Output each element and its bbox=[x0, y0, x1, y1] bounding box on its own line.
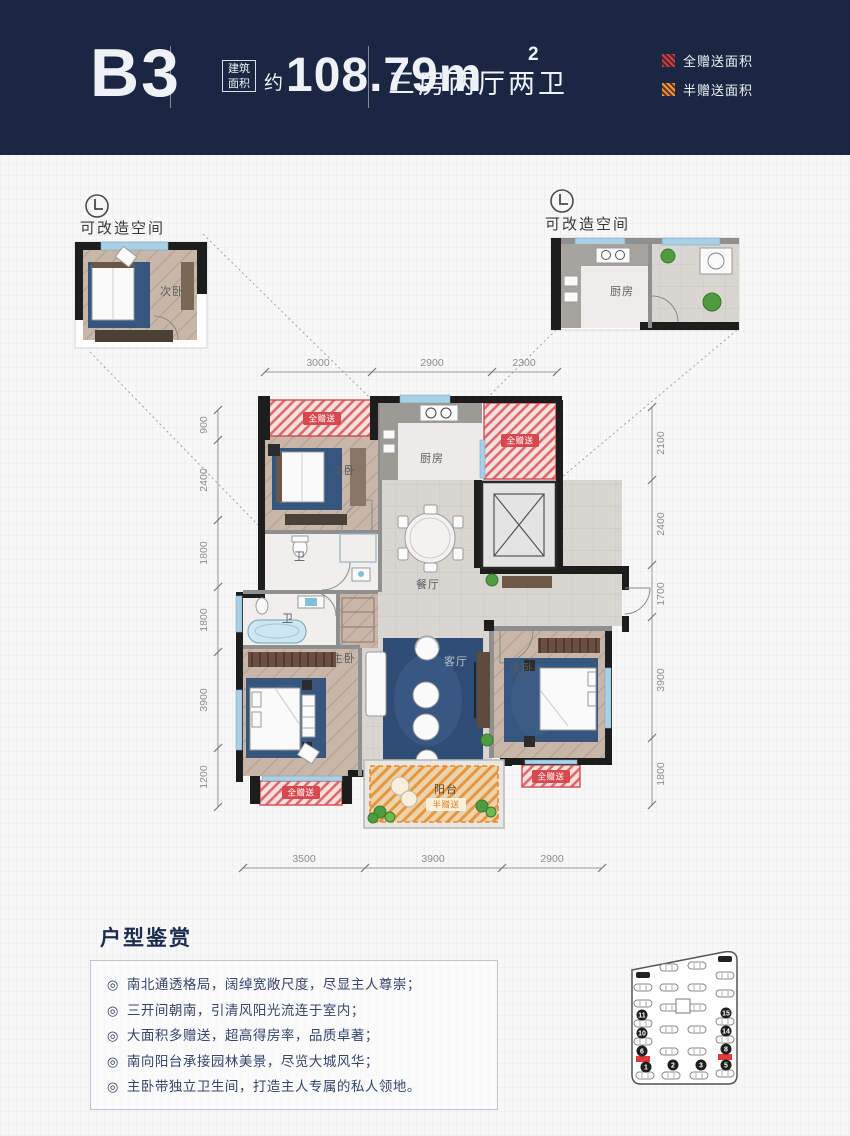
svg-text:3900: 3900 bbox=[655, 668, 667, 692]
feature-text: 大面积多赠送，超高得房率，品质卓著； bbox=[127, 1024, 379, 1044]
site-plan-map: 1 2 3 5 6 8 10 11 14 15 bbox=[616, 944, 752, 1094]
gift-area-master-bay: 全赠送 bbox=[260, 781, 342, 805]
header-divider-2 bbox=[368, 46, 369, 108]
balcony-half-gift-tag: 半赠送 bbox=[432, 800, 459, 810]
svg-text:1200: 1200 bbox=[198, 765, 210, 789]
callout-right-title: 可改造空间 bbox=[545, 216, 630, 233]
svg-text:全赠送: 全赠送 bbox=[287, 788, 314, 798]
features-box: ◎ 南北通透格局，阔绰宽敞尺度，尽显主人尊崇； ◎ 三开间朝南，引清风阳光流连于… bbox=[90, 960, 498, 1110]
highlighted-unit bbox=[636, 1056, 650, 1062]
area-approx: 约 bbox=[264, 68, 283, 95]
svg-text:1800: 1800 bbox=[198, 608, 210, 632]
half-gift-label: 半赠送面积 bbox=[683, 80, 753, 99]
svg-text:11: 11 bbox=[638, 1013, 646, 1020]
gift-legend: 全赠送面积 半赠送面积 bbox=[662, 50, 753, 108]
unit-code: B3 bbox=[90, 34, 181, 112]
highlighted-unit bbox=[718, 1054, 732, 1060]
svg-text:全赠送: 全赠送 bbox=[537, 772, 564, 782]
main-floor-plan: 全赠送 全赠送 全赠送 全赠送 bbox=[198, 357, 667, 872]
feature-item: ◎ 南北通透格局，阔绰宽敞尺度，尽显主人尊崇； bbox=[107, 973, 481, 999]
svg-text:3: 3 bbox=[699, 1063, 703, 1070]
svg-text:2: 2 bbox=[671, 1063, 675, 1070]
svg-text:1800: 1800 bbox=[198, 541, 210, 565]
floor-plan-scene: 可改造空间 次卧 bbox=[0, 155, 850, 915]
svg-text:2900: 2900 bbox=[420, 357, 444, 369]
feature-text: 南向阳台承接园林美景，尽览大城风华； bbox=[127, 1050, 379, 1070]
living-furniture bbox=[366, 636, 493, 772]
area-badge-line1: 建筑 bbox=[223, 62, 255, 77]
svg-text:900: 900 bbox=[198, 416, 210, 434]
bedroom-right-label: 次卧 bbox=[510, 661, 534, 675]
svg-text:1700: 1700 bbox=[655, 582, 667, 606]
remodel-space-icon bbox=[551, 190, 573, 212]
area-badge-line2: 面积 bbox=[223, 77, 255, 92]
balcony-label: 阳台 bbox=[434, 782, 458, 796]
callout-right-plan: 厨房 bbox=[551, 238, 739, 330]
svg-text:3500: 3500 bbox=[292, 853, 316, 865]
area-badge: 建筑 面积 bbox=[222, 60, 256, 92]
feature-bullet: ◎ bbox=[107, 977, 119, 993]
header-band: B3 建筑 面积 约 108.79m 2 三房两厅两卫 全赠送面积 半赠送面积 bbox=[0, 0, 850, 155]
gift-area-bedroom-right-bay: 全赠送 bbox=[522, 765, 580, 787]
features-title: 户型鉴赏 bbox=[100, 922, 192, 952]
wardrobe-nook-floor bbox=[338, 592, 378, 648]
legend-row-half: 半赠送面积 bbox=[662, 79, 753, 99]
gift-area-top-right: 全赠送 bbox=[484, 403, 556, 479]
svg-text:1: 1 bbox=[644, 1065, 648, 1072]
callout-left-room-label: 次卧 bbox=[160, 284, 184, 298]
half-gift-swatch bbox=[662, 83, 675, 96]
feature-bullet: ◎ bbox=[107, 1003, 119, 1019]
bath1-label: 卫 bbox=[294, 551, 306, 563]
dimensions-top: 3000 2900 2300 bbox=[261, 357, 561, 376]
svg-text:3000: 3000 bbox=[306, 357, 330, 369]
living-label: 客厅 bbox=[444, 654, 468, 668]
feature-text: 南北通透格局，阔绰宽敞尺度，尽显主人尊崇； bbox=[127, 973, 421, 993]
callout-right-room-label: 厨房 bbox=[610, 285, 634, 298]
feature-item: ◎ 南向阳台承接园林美景，尽览大城风华； bbox=[107, 1050, 481, 1076]
svg-text:15: 15 bbox=[722, 1011, 730, 1018]
master-label: 主卧 bbox=[332, 652, 356, 665]
feature-bullet: ◎ bbox=[107, 1028, 119, 1044]
full-gift-label: 全赠送面积 bbox=[683, 51, 753, 70]
svg-text:6: 6 bbox=[640, 1049, 644, 1056]
svg-text:全赠送: 全赠送 bbox=[308, 414, 335, 424]
callout-left: 可改造空间 次卧 bbox=[75, 195, 207, 348]
svg-text:5: 5 bbox=[724, 1063, 728, 1070]
gift-area-bedroom-top: 全赠送 bbox=[268, 400, 374, 436]
svg-text:全赠送: 全赠送 bbox=[506, 436, 533, 446]
svg-text:14: 14 bbox=[722, 1029, 730, 1036]
svg-text:10: 10 bbox=[638, 1031, 646, 1038]
feature-text: 三开间朝南，引清风阳光流连于室内； bbox=[127, 999, 365, 1019]
svg-text:2300: 2300 bbox=[512, 357, 536, 369]
feature-item: ◎ 三开间朝南，引清风阳光流连于室内； bbox=[107, 999, 481, 1025]
bath2-label: 卫 bbox=[282, 613, 294, 625]
svg-text:1800: 1800 bbox=[655, 762, 667, 786]
feature-item: ◎ 大面积多赠送，超高得房率，品质卓著； bbox=[107, 1024, 481, 1050]
svg-text:2100: 2100 bbox=[655, 431, 667, 455]
full-gift-swatch bbox=[662, 54, 675, 67]
feature-item: ◎ 主卧带独立卫生间，打造主人专属的私人领地。 bbox=[107, 1075, 481, 1101]
feature-bullet: ◎ bbox=[107, 1054, 119, 1070]
feature-text: 主卧带独立卫生间，打造主人专属的私人领地。 bbox=[127, 1075, 421, 1095]
kitchen-label: 厨房 bbox=[420, 452, 444, 465]
svg-text:2400: 2400 bbox=[198, 468, 210, 492]
svg-text:3900: 3900 bbox=[198, 688, 210, 712]
callout-left-title: 可改造空间 bbox=[80, 220, 165, 237]
remodel-space-icon bbox=[86, 195, 108, 217]
elevator-shaft bbox=[482, 482, 556, 568]
flyer-page: B3 建筑 面积 约 108.79m 2 三房两厅两卫 全赠送面积 半赠送面积 bbox=[0, 0, 850, 1136]
dining-label: 餐厅 bbox=[416, 577, 440, 591]
dimensions-right: 2100 2400 1700 3900 1800 bbox=[648, 403, 667, 809]
header-divider-1 bbox=[170, 46, 171, 108]
bedroom-top-label: 次卧 bbox=[332, 463, 356, 477]
callout-left-plan: 次卧 bbox=[75, 242, 207, 348]
svg-text:8: 8 bbox=[724, 1047, 728, 1054]
layout-type: 三房两厅两卫 bbox=[388, 62, 568, 101]
svg-text:2900: 2900 bbox=[540, 853, 564, 865]
legend-row-full: 全赠送面积 bbox=[662, 50, 753, 70]
feature-bullet: ◎ bbox=[107, 1079, 119, 1095]
dimensions-bottom: 3500 3900 2900 bbox=[239, 853, 606, 872]
svg-text:2400: 2400 bbox=[655, 512, 667, 536]
svg-text:3900: 3900 bbox=[421, 853, 445, 865]
callout-right: 可改造空间 bbox=[545, 190, 739, 330]
